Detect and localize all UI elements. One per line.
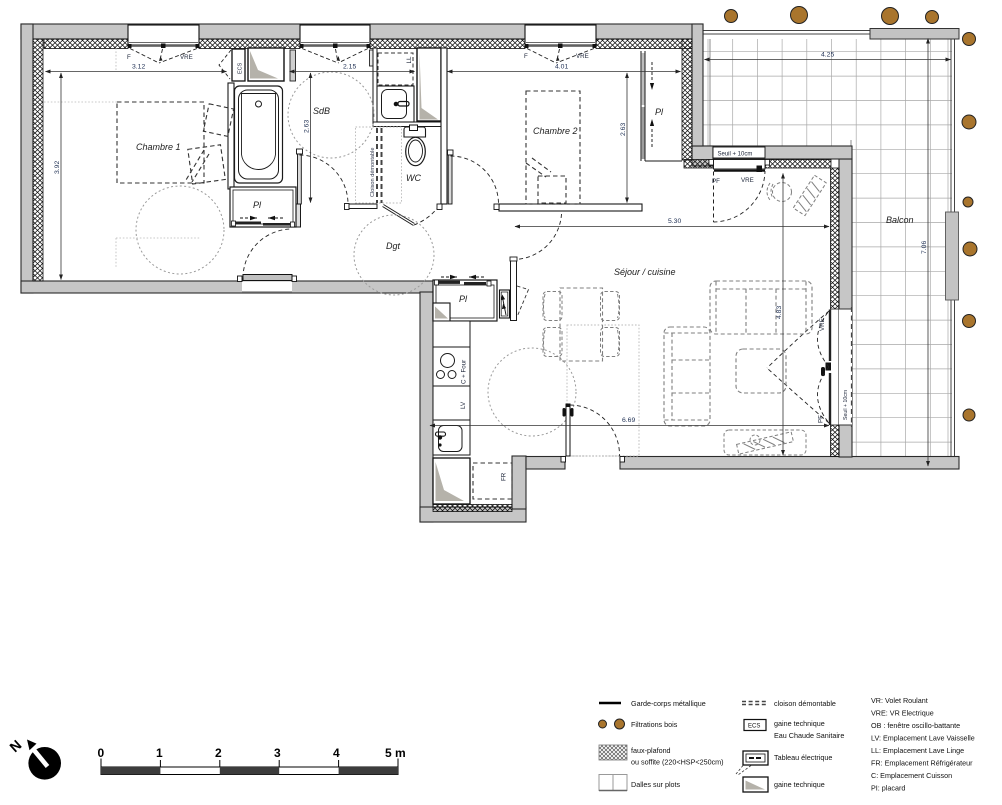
svg-text:0: 0 xyxy=(98,746,105,760)
svg-text:5.30: 5.30 xyxy=(668,218,681,225)
svg-text:LV: LV xyxy=(460,401,467,409)
svg-text:PF: PF xyxy=(818,415,825,423)
svg-text:ECS: ECS xyxy=(748,724,760,730)
svg-text:2.15: 2.15 xyxy=(343,64,356,71)
svg-text:4: 4 xyxy=(333,746,340,760)
svg-text:Filtrations bois: Filtrations bois xyxy=(631,720,678,729)
svg-text:SdB: SdB xyxy=(313,106,330,116)
svg-text:VRE: VRE xyxy=(576,53,589,60)
svg-text:VRE: VRE xyxy=(819,318,826,331)
svg-text:4.25: 4.25 xyxy=(821,52,834,59)
svg-text:Eau Chaude Sanitaire: Eau Chaude Sanitaire xyxy=(774,731,844,740)
svg-text:Dgt: Dgt xyxy=(386,241,401,251)
svg-text:4.83: 4.83 xyxy=(776,306,783,319)
svg-text:Seuil + 10cm: Seuil + 10cm xyxy=(843,390,849,420)
svg-text:FR: Emplacement Réfrigérateur: FR: Emplacement Réfrigérateur xyxy=(871,759,973,768)
svg-text:2.63: 2.63 xyxy=(304,120,311,133)
svg-text:1: 1 xyxy=(156,746,163,760)
svg-text:Dalles sur plots: Dalles sur plots xyxy=(631,780,681,789)
svg-text:LV: Emplacement Lave Vaisselle: LV: Emplacement Lave Vaisselle xyxy=(871,734,975,743)
svg-text:Pl: Pl xyxy=(655,107,664,117)
svg-text:7.06: 7.06 xyxy=(921,241,928,254)
svg-text:faux-plafond: faux-plafond xyxy=(631,746,671,755)
svg-text:WC: WC xyxy=(406,173,421,183)
svg-text:LL: LL xyxy=(406,56,413,63)
svg-text:FR: FR xyxy=(501,472,508,481)
svg-text:LL: Emplacement Lave Linge: LL: Emplacement Lave Linge xyxy=(871,746,964,755)
svg-text:4.01: 4.01 xyxy=(555,64,568,71)
svg-text:VRE: VRE xyxy=(180,54,193,61)
svg-text:Chambre 1: Chambre 1 xyxy=(136,142,181,152)
svg-text:VR: Volet Roulant: VR: Volet Roulant xyxy=(871,696,928,705)
svg-text:Seuil + 10cm: Seuil + 10cm xyxy=(718,152,753,158)
svg-text:F: F xyxy=(524,53,528,60)
svg-text:Garde-corps métallique: Garde-corps métallique xyxy=(631,699,706,708)
svg-text:5 m: 5 m xyxy=(385,746,406,760)
svg-text:OB : fenêtre oscillo-battante: OB : fenêtre oscillo-battante xyxy=(871,721,960,730)
svg-text:gaine technique: gaine technique xyxy=(774,719,825,728)
svg-text:VRE: VRE xyxy=(741,177,754,184)
svg-text:PF: PF xyxy=(712,178,720,185)
svg-text:C + Four: C + Four xyxy=(461,360,468,384)
svg-text:F: F xyxy=(127,54,131,61)
svg-text:ECS: ECS xyxy=(238,62,244,74)
svg-text:VRE: VR Electrique: VRE: VR Electrique xyxy=(871,709,934,718)
svg-text:Cloison démontable: Cloison démontable xyxy=(370,148,376,197)
svg-text:2.63: 2.63 xyxy=(620,123,627,136)
svg-text:ou soffite (220<HSP<250cm): ou soffite (220<HSP<250cm) xyxy=(631,758,724,767)
svg-text:3.12: 3.12 xyxy=(132,64,145,71)
svg-text:2: 2 xyxy=(215,746,222,760)
svg-text:PI: placard: PI: placard xyxy=(871,784,905,793)
svg-text:6.69: 6.69 xyxy=(622,417,635,424)
svg-text:Balcon: Balcon xyxy=(886,215,914,225)
svg-text:3: 3 xyxy=(274,746,281,760)
svg-text:Pl: Pl xyxy=(253,200,262,210)
svg-text:Séjour / cuisine: Séjour / cuisine xyxy=(614,267,676,277)
svg-text:Pl: Pl xyxy=(459,294,468,304)
svg-text:cloison démontable: cloison démontable xyxy=(774,699,836,708)
svg-text:C: Emplacement Cuisson: C: Emplacement Cuisson xyxy=(871,771,952,780)
svg-text:gaine technique: gaine technique xyxy=(774,780,825,789)
svg-text:Tableau électrique: Tableau électrique xyxy=(774,753,832,762)
svg-text:Chambre 2: Chambre 2 xyxy=(533,126,578,136)
svg-text:3.92: 3.92 xyxy=(54,161,61,174)
